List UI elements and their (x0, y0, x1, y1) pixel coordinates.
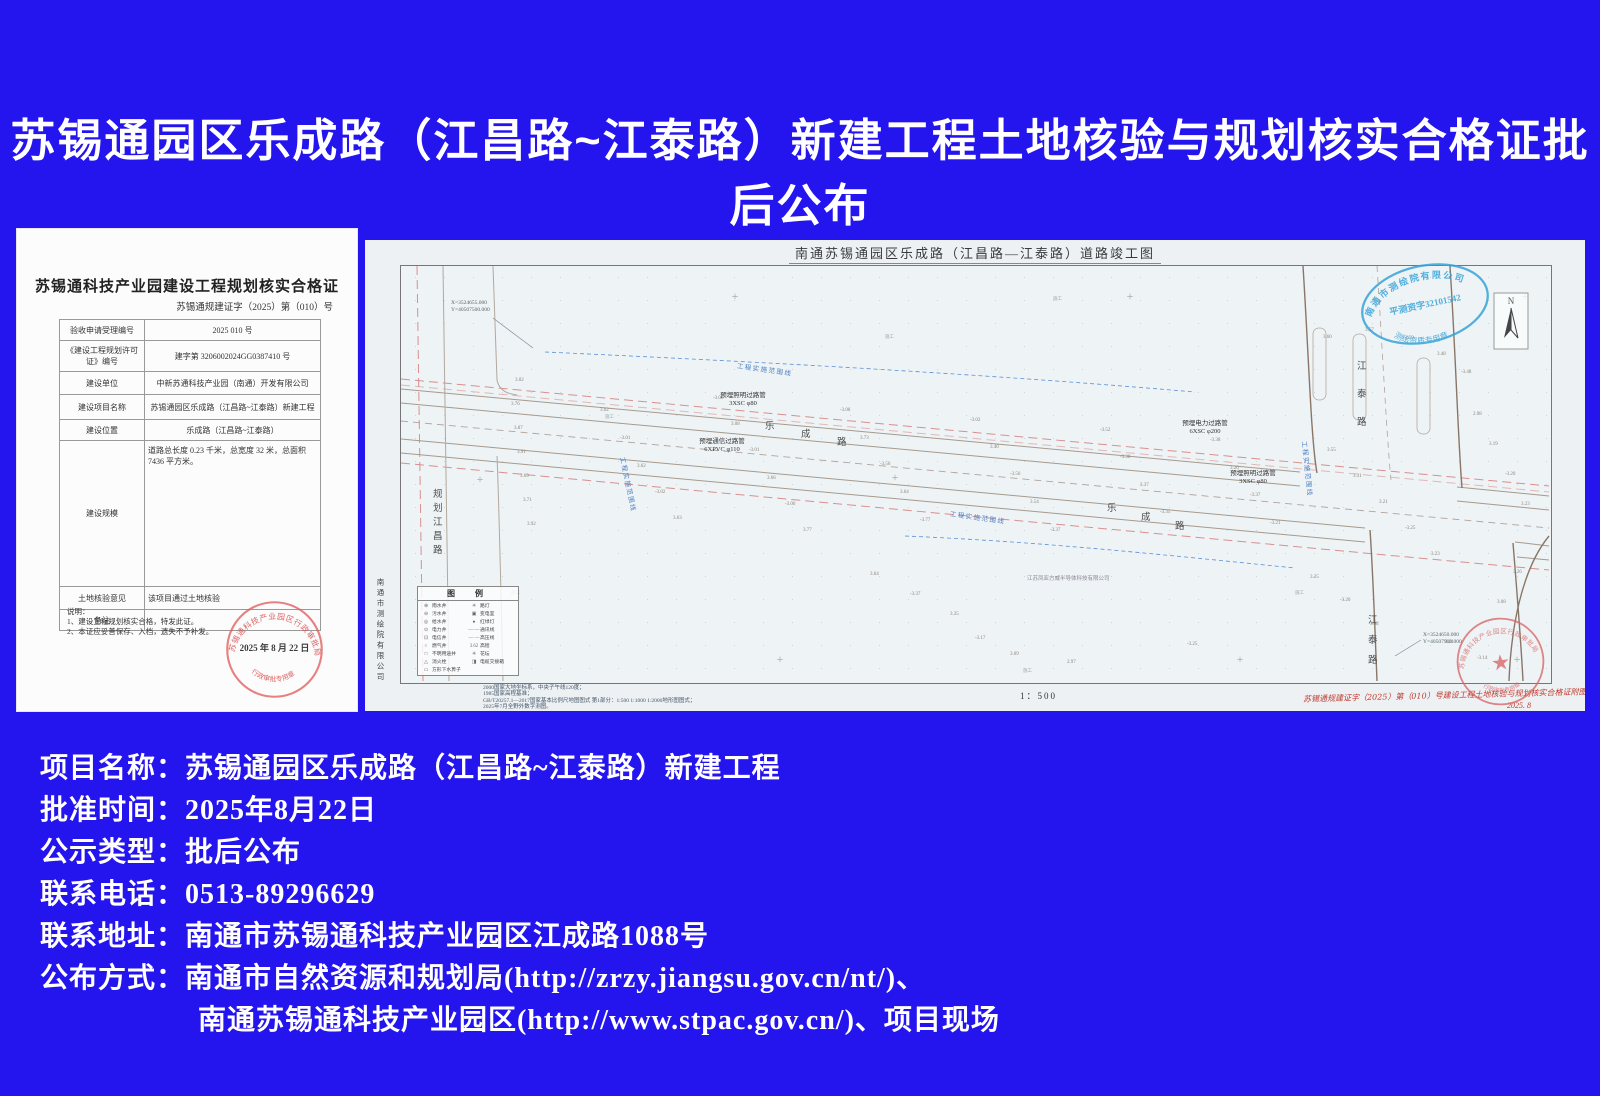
elevation-label: 3.19 (1489, 442, 1498, 447)
construction-label: 施工 (1295, 590, 1304, 596)
announcement-info: 项目名称：苏锡通园区乐成路（江昌路~江泰路）新建工程 批准时间：2025年8月2… (40, 748, 1000, 1042)
elevation-label: -3.20 (1505, 472, 1515, 477)
info-line-publish-method-cont: 南通苏锡通科技产业园区(http://www.stpac.gov.cn/)、项目… (40, 1000, 1000, 1042)
pipe-annotation: 预埋电力过路管6XSC φ200 (1182, 420, 1228, 436)
manhole-rain-icon: ⊕ (420, 603, 432, 611)
grid-cross: + (1237, 652, 1244, 667)
info-label: 公布方式： (40, 963, 185, 994)
elevation-label: 3.09 (1010, 652, 1019, 657)
elevation-label: 3.62 (637, 464, 646, 469)
elevation-label: 3.92 (527, 522, 536, 527)
grid-cross: + (892, 470, 899, 485)
elevation-label: 3.60 (1323, 335, 1332, 340)
info-line-phone: 联系电话：0513-89296629 (40, 874, 1000, 916)
manhole-sewage-icon: ⊖ (420, 611, 432, 619)
page-title: 苏锡通园区乐成路（江昌路~江泰路）新建工程土地核验与规划核实合格证批后公布 (0, 104, 1600, 234)
legend-box: 图 例 ⊕雨水井 ⊖污水井 ◎给水井 ⊙电力井 ⊡电信井 ○燃气井 □不明用途井… (417, 586, 519, 676)
road-name-char: 规 (433, 486, 443, 500)
table-row: 验收申请受理编号 2025 010 号 (60, 320, 321, 341)
table-row: 《建设工程规划许可证》编号 建字第 3206002024GG0387410 号 (60, 341, 321, 372)
elevation-label: -3.56 (880, 462, 890, 467)
road-name-char: 江 (433, 514, 443, 528)
elevation-label: -3.02 (970, 418, 980, 423)
construction-label: 施工 (1053, 296, 1062, 302)
red-approval-stamp2-icon: ★ 苏锡通科技产业园区行政审批局 行政审批专用章 (1438, 606, 1563, 711)
elevation-label: -3.37 (1050, 528, 1060, 533)
elevation-label: -3.21 (1270, 521, 1280, 526)
elevation-label: -3.77 (920, 518, 930, 523)
row-value: 道路总长度 0.23 千米，总宽度 32 米，总面积 7436 平方米。 (145, 441, 321, 587)
elevation-label: 3.77 (803, 528, 812, 533)
row-value: 苏锡通园区乐成路（江昌路~江泰路）新建工程 (145, 395, 321, 420)
elevation-label: 3.35 (950, 612, 959, 617)
svg-text:★: ★ (1490, 650, 1512, 676)
elevation-label: -3.17 (975, 636, 985, 641)
road-name-char: 路 (1357, 414, 1367, 428)
pipe-annotation: 预埋照明过路管3XSC φ80 (1230, 470, 1276, 486)
announcement-page: 苏锡通园区乐成路（江昌路~江泰路）新建工程土地核验与规划核实合格证批后公布 苏锡… (0, 0, 1600, 1096)
grid-cross: + (477, 472, 484, 487)
road-name-char: 划 (433, 500, 443, 514)
comm-line-icon: —·— (468, 627, 480, 635)
elevation-label: 3.21 (1379, 500, 1388, 505)
info-label: 批准时间： (40, 795, 185, 826)
info-value: 苏锡通园区乐成路（江昌路~江泰路）新建工程 (185, 753, 781, 784)
grid-cross: + (732, 289, 739, 304)
grid-cross: + (1127, 289, 1134, 304)
elevation-label: -3.52 (1100, 428, 1110, 433)
road-name-char: 路 (1175, 518, 1185, 532)
elevation-label: 3.26 (1513, 570, 1522, 575)
certificate-sheet: 苏锡通科技产业园建设工程规划核实合格证 苏锡通规建证字（2025）第（010）号… (16, 228, 358, 712)
table-row: 建设位置 乐成路（江昌路~江泰路） (60, 420, 321, 441)
road-name-char: 成 (1141, 509, 1151, 523)
elevation-label: 3.02 (515, 378, 524, 383)
info-line-publicity-type: 公示类型：批后公布 (40, 832, 1000, 874)
power-line-icon: — — (468, 635, 480, 643)
table-row: 建设规模 道路总长度 0.23 千米，总宽度 32 米，总面积 7436 平方米… (60, 441, 321, 587)
elevation-label: -3.25 (1187, 642, 1197, 647)
traffic-light-icon: ● (468, 619, 480, 627)
row-label: 建设规模 (60, 441, 145, 587)
pipe-annotation: 预埋照明过路管3XSC φ80 (720, 392, 766, 408)
certificate-table: 验收申请受理编号 2025 010 号 《建设工程规划许可证》编号 建字第 32… (59, 319, 321, 631)
info-label: 公示类型： (40, 837, 185, 868)
manhole-telecom-icon: ⊡ (420, 635, 432, 643)
elevation-label: -3.01 (749, 448, 759, 453)
elevation-label: -3.35 (1160, 510, 1170, 515)
elevation-label: 3.02 (600, 408, 609, 413)
row-label: 验收申请受理编号 (60, 320, 145, 341)
row-label: 建设项目名称 (60, 395, 145, 420)
manhole-gas-icon: ○ (420, 643, 432, 651)
legend-right-column: ☀路灯 ▣变电室 ●红绿灯 —·—通讯线 — —高压线 3.62高程 ✳花坛 ◨… (468, 603, 516, 675)
road-name-char: 路 (1368, 652, 1378, 666)
info-value: 南通市苏锡通科技产业园区江成路1088号 (185, 921, 709, 952)
manhole-unknown-icon: □ (420, 651, 432, 659)
manhole-power-icon: ⊙ (420, 627, 432, 635)
elevation-label: -3.01 (620, 436, 630, 441)
elevation-label: 3.25 (1310, 575, 1319, 580)
elevation-label: 3.08 (1497, 600, 1506, 605)
info-label: 联系地址： (40, 921, 185, 952)
certificate-notes: 说明： 1、建设工程规划核实合格，特发此证。 2、本证应妥善保存、入档，遗失不予… (67, 607, 213, 637)
elevation-label: 3.31 (1353, 474, 1362, 479)
info-value: 0513-89296629 (185, 879, 375, 910)
legend-left-column: ⊕雨水井 ⊖污水井 ◎给水井 ⊙电力井 ⊡电信井 ○燃气井 □不明用途井 △消火… (420, 603, 468, 675)
notes-title: 说明： (67, 607, 213, 617)
table-row: 建设项目名称 苏锡通园区乐成路（江昌路~江泰路）新建工程 (60, 395, 321, 420)
construction-label: 施工 (605, 414, 614, 420)
row-value: 2025 010 号 (145, 320, 321, 341)
elevation-label: 3.64 (870, 572, 879, 577)
info-label: 项目名称： (40, 753, 185, 784)
legend-title: 图 例 (418, 587, 518, 601)
elevation-icon: 3.62 (468, 643, 480, 651)
elevation-label: 3.23 (1431, 552, 1440, 557)
elevation-label: 3.54 (1030, 500, 1039, 505)
info-label: 联系电话： (40, 879, 185, 910)
road-name-char: 路 (433, 542, 443, 556)
road-name-char: 乐 (1107, 500, 1117, 514)
info-line-address: 联系地址：南通市苏锡通科技产业园区江成路1088号 (40, 916, 1000, 958)
elevation-label: -3.38 (1120, 455, 1130, 460)
road-drawing-panel: 南通苏锡通园区乐成路（江昌路—江泰路）道路竣工图 (365, 240, 1585, 711)
svg-text:测绘资质专用章: 测绘资质专用章 (1391, 320, 1450, 352)
elevation-label: 3.08 (731, 422, 740, 427)
info-line-publish-method: 公布方式：南通市自然资源和规划局(http://zrzy.jiangsu.gov… (40, 958, 1000, 1000)
elevation-label: 3.69 (520, 474, 529, 479)
road-name-char: 昌 (433, 528, 443, 542)
info-value: 2025年8月22日 (185, 795, 377, 826)
drain-grate-icon: ▭ (420, 667, 432, 675)
elevation-label: -3.56 (1010, 472, 1020, 477)
info-line-project: 项目名称：苏锡通园区乐成路（江昌路~江泰路）新建工程 (40, 748, 1000, 790)
elevation-label: -3.20 (1340, 598, 1350, 603)
elevation-label: 3.91 (517, 450, 526, 455)
pipe-annotation: 预埋通信过路管6XPVC φ110 (699, 438, 745, 454)
elevation-label: -3.25 (1405, 526, 1415, 531)
table-row: 建设单位 中新苏通科技产业园（南通）开发有限公司 (60, 372, 321, 395)
elevation-label: 3.87 (514, 426, 523, 431)
range-line-label: 工程实施范围线 (1300, 440, 1316, 497)
elevation-label: -3.08 (840, 408, 850, 413)
map-notes: 2000国家大地坐标系，中央子午线120度； 1985国家高程基准； GB/T2… (483, 685, 695, 710)
svg-text:平测资字32101542: 平测资字32101542 (1388, 291, 1462, 317)
elevation-label: -3.37 (1250, 493, 1260, 498)
svg-text:N: N (1508, 296, 1515, 306)
elevation-label: 3.37 (1140, 483, 1149, 488)
road-name-char: 路 (837, 434, 847, 448)
elevation-label: 3.71 (523, 498, 532, 503)
grid-cross: + (777, 652, 784, 667)
range-line-label: 工程实施范围线 (949, 508, 1006, 526)
elevation-label: 3.40 (990, 445, 999, 450)
row-value: 建字第 3206002024GG0387410 号 (145, 341, 321, 372)
streetlight-icon: ☀ (468, 603, 480, 611)
road-name-char: 泰 (1357, 386, 1367, 400)
elevation-label: 3.55 (1327, 448, 1336, 453)
road-name-char: 成 (801, 426, 811, 440)
elevation-label: -3.06 (785, 502, 795, 507)
construction-label: 施工 (885, 334, 894, 340)
elevation-label: -3.38 (1210, 438, 1220, 443)
elevation-label: 2.97 (1067, 660, 1076, 665)
elevation-label: 3.64 (900, 490, 909, 495)
hydrant-icon: △ (420, 659, 432, 667)
flowerbed-icon: ✳ (468, 651, 480, 659)
row-label: 建设单位 (60, 372, 145, 395)
road-name-char: 泰 (1368, 632, 1378, 646)
coordinate-label-topleft: X=3524655.000 Y=40507500.000 (451, 300, 490, 314)
elevation-label: 3.48 (1437, 352, 1446, 357)
elevation-label: 3.76 (511, 402, 520, 407)
substation-icon: ▣ (468, 611, 480, 619)
construction-label: 施工 (1023, 668, 1032, 674)
row-value: 中新苏通科技产业园（南通）开发有限公司 (145, 372, 321, 395)
note-line: 1、建设工程规划核实合格，特发此证。 (67, 617, 213, 627)
scale-label: 1：500 (1020, 689, 1057, 702)
certificate-title: 苏锡通科技产业园建设工程规划核实合格证 (17, 275, 357, 296)
elevation-label: -3.02 (655, 490, 665, 495)
note-line: 2、本证应妥善保存、入档，遗失不予补发。 (67, 627, 213, 637)
row-label: 建设位置 (60, 420, 145, 441)
elevation-label: 2.98 (1473, 412, 1482, 417)
elevation-label: 3.63 (673, 516, 682, 521)
range-line-label: 工程实施范围线 (736, 360, 793, 378)
certificate-doc-number: 苏锡通规建证字（2025）第（010）号 (176, 299, 333, 313)
elevation-label: 3.73 (860, 436, 869, 441)
surveyor-company-vertical: 南通市测绘院有限公司 (375, 578, 386, 694)
svg-text:行政审批专用章: 行政审批专用章 (250, 667, 297, 684)
road-name-char: 乐 (765, 418, 775, 432)
info-value: 南通苏锡通科技产业园区(http://www.stpac.gov.cn/)、项目… (198, 1005, 1000, 1036)
road-name-char: 江 (1368, 612, 1378, 626)
elevation-label: 3.66 (767, 476, 776, 481)
elevation-label: -3.48 (1461, 370, 1471, 375)
info-line-approval-date: 批准时间：2025年8月22日 (40, 790, 1000, 832)
stamp-date: 2025 年 8 月 22 日 (222, 641, 327, 654)
elevation-label: -3.37 (910, 592, 920, 597)
info-value: 南通市自然资源和规划局(http://zrzy.jiangsu.gov.cn/n… (185, 963, 925, 994)
cable-box-icon: ◨ (468, 659, 480, 667)
manhole-water-icon: ◎ (420, 619, 432, 627)
info-value: 批后公布 (185, 837, 301, 868)
svg-text:行政审批专用章: 行政审批专用章 (1481, 678, 1522, 697)
north-arrow-icon: N (1493, 292, 1529, 350)
elevation-label: 3.23 (1521, 502, 1530, 507)
row-label: 《建设工程规划许可证》编号 (60, 341, 145, 372)
adjacent-company-label: 江苏凤亚方威半导体科技有限公司 (1027, 574, 1110, 582)
row-value: 乐成路（江昌路~江泰路） (145, 420, 321, 441)
